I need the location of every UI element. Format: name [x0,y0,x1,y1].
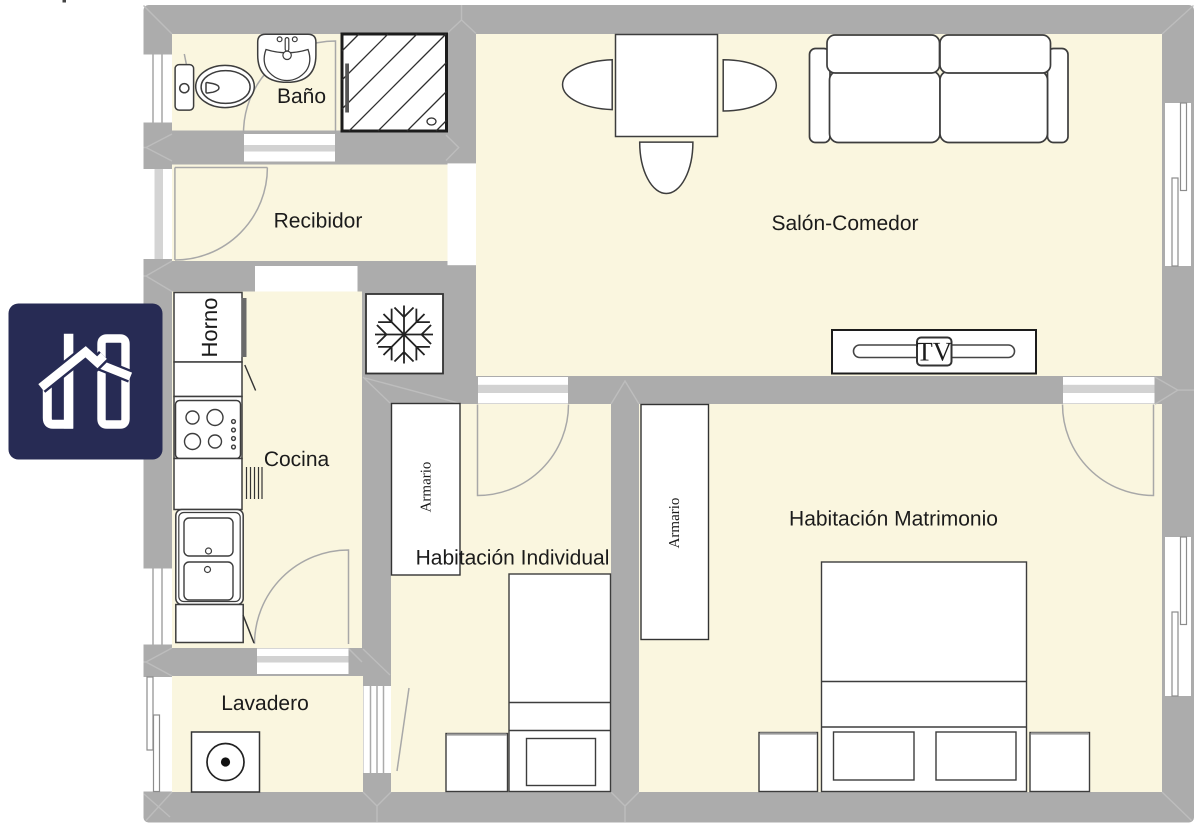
svg-text:Recibidor: Recibidor [274,210,363,233]
svg-text:Habitación Matrimonio: Habitación Matrimonio [789,508,998,531]
svg-text:Armario: Armario [418,462,434,513]
svg-text:Armario: Armario [667,498,683,549]
svg-text:Horno: Horno [197,298,222,358]
svg-text:Cocina: Cocina [264,448,330,471]
svg-text:Lavadero: Lavadero [221,692,309,715]
svg-text:TV: TV [916,336,952,366]
svg-text:Salón-Comedor: Salón-Comedor [771,212,918,235]
svg-text:Habitación Individual: Habitación Individual [416,547,610,570]
svg-text:Baño: Baño [277,85,326,108]
